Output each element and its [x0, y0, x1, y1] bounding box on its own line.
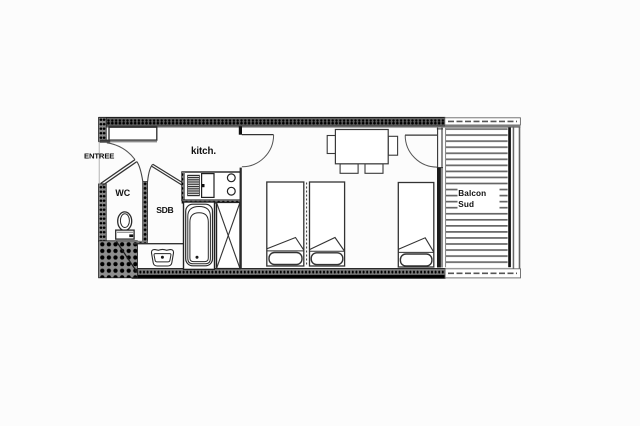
- svg-text:Balcon: Balcon: [458, 189, 486, 198]
- svg-text:SDB: SDB: [156, 205, 173, 215]
- svg-text:kitch.: kitch.: [191, 146, 216, 157]
- svg-text:ENTREE: ENTREE: [84, 152, 114, 161]
- svg-text:WC: WC: [115, 188, 130, 198]
- svg-text:Sud: Sud: [458, 200, 474, 209]
